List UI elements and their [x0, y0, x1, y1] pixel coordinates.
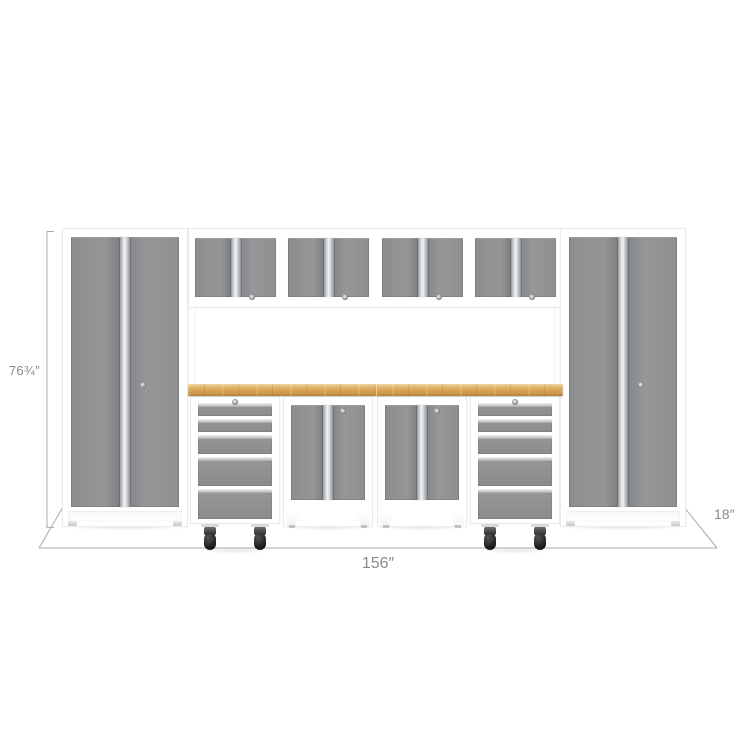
lock-icon — [140, 382, 146, 388]
depth-diagonal-right — [684, 507, 717, 548]
wall-cabinet-doors — [382, 238, 463, 297]
cabinet-door — [130, 237, 179, 507]
lock-icon — [232, 399, 238, 405]
cabinet-leg — [451, 512, 464, 528]
side-panel-left — [188, 308, 196, 384]
cabinet-door — [382, 238, 418, 297]
cabinet-door — [291, 405, 323, 500]
cabinet-door — [241, 238, 277, 297]
leveler-foot — [566, 521, 575, 526]
caster-wheel-icon — [484, 533, 496, 550]
door-handle — [231, 238, 241, 297]
height-dimension-label: 76¾″ — [0, 363, 40, 378]
cabinet-door — [628, 237, 677, 507]
cabinet-base — [566, 511, 680, 522]
lock-icon — [638, 382, 644, 388]
door-handle — [618, 237, 628, 507]
wall-cabinet-doors — [288, 238, 369, 297]
cabinet-door — [569, 237, 618, 507]
leveler-foot — [671, 521, 680, 526]
door-handle — [511, 238, 521, 297]
drawer-unit-right — [470, 396, 560, 524]
leveler-foot — [68, 521, 77, 526]
cabinet-door — [428, 238, 464, 297]
caster-wheel-icon — [254, 533, 266, 550]
drawer — [478, 435, 552, 454]
lock-icon — [249, 294, 255, 300]
lock-icon — [340, 408, 346, 414]
width-diagonal-left — [39, 507, 63, 548]
depth-dimension-label: 18″ — [714, 506, 735, 522]
cabinet-door — [427, 405, 459, 500]
drawer — [198, 457, 272, 486]
lock-icon — [436, 294, 442, 300]
base-cabinet-right — [377, 396, 467, 527]
wall-cabinet-doors — [195, 238, 276, 297]
wall-cabinet-4 — [469, 229, 562, 309]
drawer — [478, 419, 552, 432]
product-dimension-diagram: 76¾″ 156″ 18″ — [0, 0, 755, 755]
lock-icon — [529, 294, 535, 300]
drawer — [198, 435, 272, 454]
drawer-unit-left — [190, 396, 280, 524]
caster-wheel — [481, 524, 499, 551]
drawer — [478, 457, 552, 486]
lock-icon — [434, 408, 440, 414]
base-cabinet-doors — [385, 405, 459, 500]
cabinet-door — [288, 238, 324, 297]
cabinet-door — [333, 405, 365, 500]
width-dimension-label: 156″ — [298, 555, 458, 573]
cabinet-base — [68, 511, 182, 522]
wall-cabinet-3 — [376, 229, 469, 309]
tall-locker-right-doors — [569, 237, 677, 507]
cabinet-door — [334, 238, 370, 297]
wall-cabinet-row — [188, 228, 562, 308]
lock-icon — [512, 399, 518, 405]
cabinet-door — [521, 238, 557, 297]
caster-wheel-icon — [204, 533, 216, 550]
cabinet-door — [385, 405, 417, 500]
tall-locker-left-doors — [71, 237, 179, 507]
wall-cabinet-doors — [475, 238, 556, 297]
wall-cabinet-2 — [282, 229, 375, 309]
door-handle — [120, 237, 130, 507]
base-cabinet-doors — [291, 405, 365, 500]
leveler-foot — [173, 521, 182, 526]
wall-cabinet-1 — [189, 229, 282, 309]
lock-icon — [342, 294, 348, 300]
door-handle — [324, 238, 334, 297]
drawer — [478, 489, 552, 519]
drawer — [198, 489, 272, 519]
tall-locker-left — [62, 228, 188, 527]
cabinet-door — [195, 238, 231, 297]
tall-locker-right — [560, 228, 686, 527]
drawer — [198, 419, 272, 432]
door-handle — [323, 405, 333, 500]
cabinet-door — [71, 237, 120, 507]
caster-wheel — [531, 524, 549, 551]
cabinet-leg — [286, 512, 299, 528]
cabinet-leg — [380, 512, 393, 528]
cabinet-door — [475, 238, 511, 297]
caster-wheel — [201, 524, 219, 551]
cabinet-leg — [357, 512, 370, 528]
door-handle — [417, 405, 427, 500]
base-cabinet-left — [283, 396, 373, 527]
caster-wheel — [251, 524, 269, 551]
bamboo-worktop — [188, 384, 563, 396]
door-handle — [418, 238, 428, 297]
caster-wheel-icon — [534, 533, 546, 550]
